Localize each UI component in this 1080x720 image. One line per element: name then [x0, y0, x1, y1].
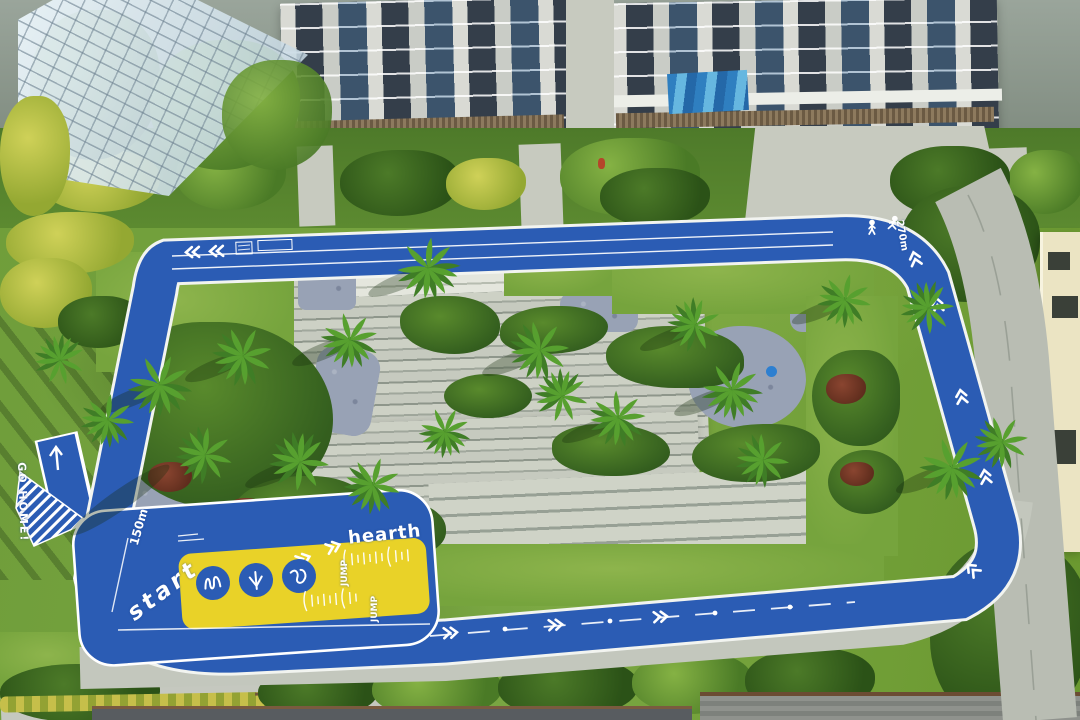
- track-and-trees-layer: [0, 0, 1080, 720]
- aerial-photo-scene: hearth start GO HOME! 150m 270m JUMP JUM…: [0, 0, 1080, 720]
- go-home-label: GO HOME!: [15, 462, 31, 543]
- jogging-track-loop: [71, 216, 998, 668]
- jump-label-bottom: JUMP: [370, 596, 380, 622]
- jump-label-top: JUMP: [340, 560, 350, 586]
